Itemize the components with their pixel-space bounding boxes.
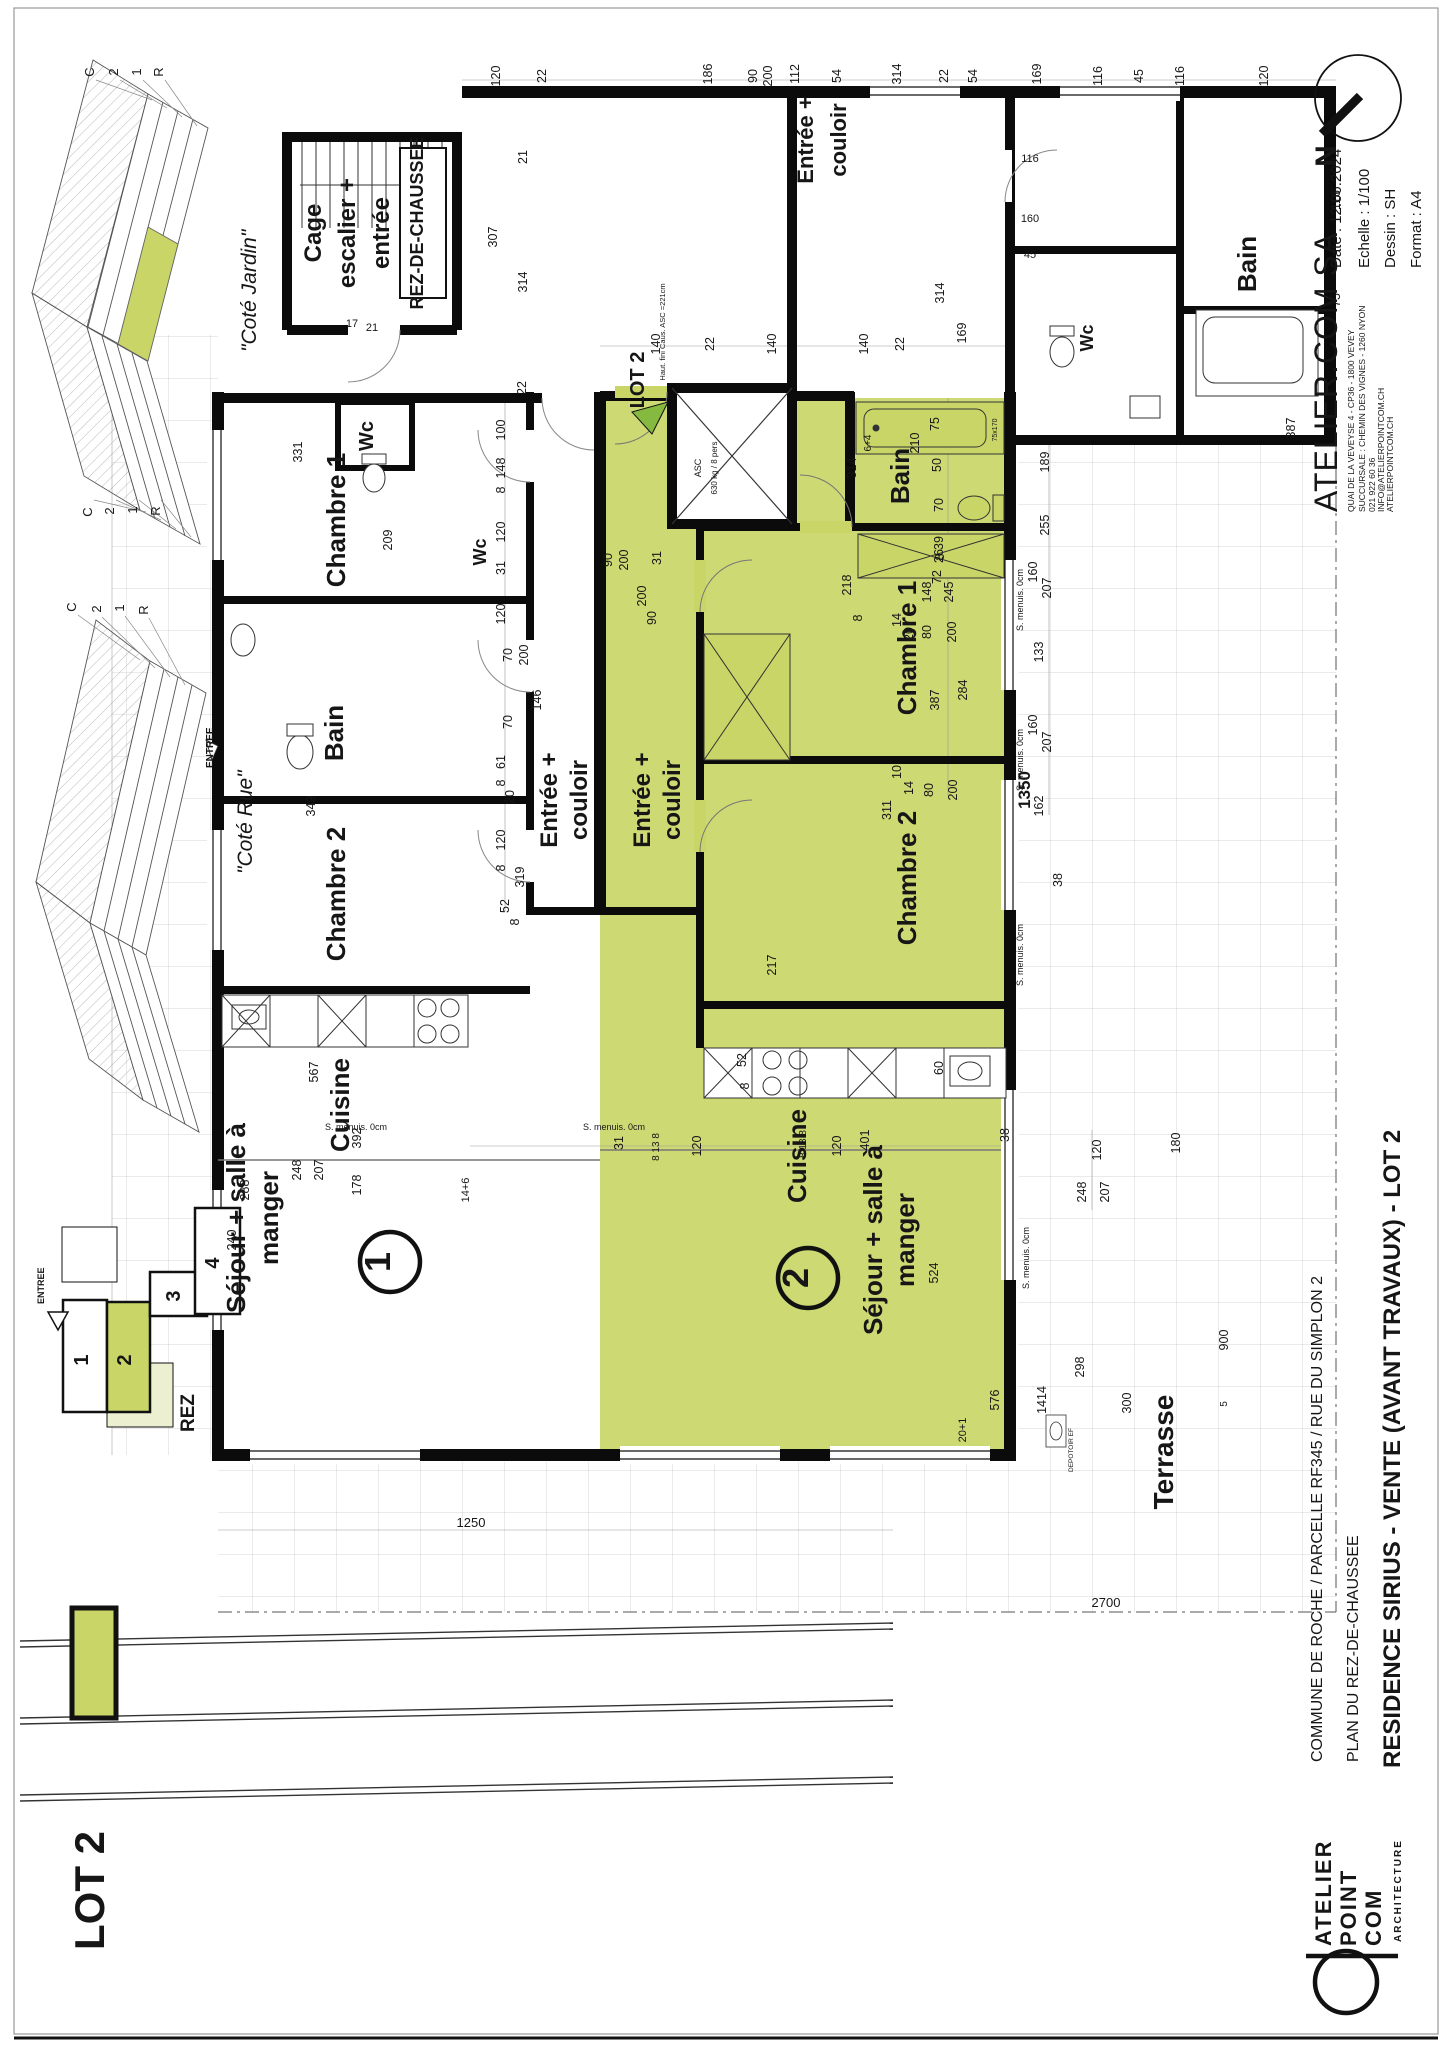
title-block-text: SUCCURSALE : CHEMIN DES VIGNES - 1260 NY… bbox=[1357, 306, 1367, 512]
dimension-label: 207 bbox=[1098, 1182, 1112, 1203]
dimension-label: 2700 bbox=[1092, 1595, 1121, 1610]
dimension-label: 38 bbox=[998, 1128, 1012, 1142]
room-label: Cage bbox=[300, 204, 327, 263]
dimension-label: 70 bbox=[501, 648, 515, 662]
dimension-label: 20 bbox=[902, 627, 916, 641]
dimension-label: 70 bbox=[932, 498, 946, 512]
dimension-label: 200 bbox=[617, 550, 631, 571]
dimension-label: 75 bbox=[1329, 293, 1343, 307]
dimension-label: 8 bbox=[933, 553, 947, 560]
axonometric-label: C bbox=[82, 67, 97, 76]
annotation-label: ASC bbox=[693, 458, 703, 477]
dimension-label: 120 bbox=[494, 604, 508, 625]
room-label: Chambre 2 bbox=[321, 827, 351, 961]
dimension-label: 245 bbox=[942, 582, 956, 603]
dimension-label: 75 bbox=[928, 417, 942, 431]
annotation-label: S. menuis. 0cm bbox=[1015, 924, 1025, 986]
logo-text: ARCHITECTURE bbox=[1393, 1839, 1404, 1942]
dimension-label: 22 bbox=[535, 69, 549, 83]
dimension-label: 284 bbox=[956, 680, 970, 701]
dimension-label: 90 bbox=[601, 553, 615, 567]
sink-bain1 bbox=[231, 624, 255, 656]
dimension-label: 20 bbox=[503, 790, 517, 804]
dimension-label: 8 13 8 bbox=[651, 1133, 662, 1161]
dimension-label: 8 bbox=[494, 864, 508, 871]
dimension-label: 100 bbox=[494, 420, 508, 441]
dimension-label: 14 bbox=[902, 781, 916, 795]
dimension-label: 314 bbox=[516, 272, 530, 293]
dimension-label: 140 bbox=[857, 334, 871, 355]
dimension-label: 52 bbox=[735, 1053, 749, 1067]
dimension-label: 160 bbox=[1021, 213, 1039, 225]
dimension-label: 80 bbox=[920, 625, 934, 639]
dimension-label: 217 bbox=[765, 955, 779, 976]
dimension-label: 54 bbox=[830, 69, 844, 83]
dimension-label: 20+1 bbox=[957, 1418, 969, 1443]
dimension-label: 387 bbox=[1284, 418, 1298, 439]
room-label: Chambre 2 bbox=[892, 811, 922, 945]
room-label: Terrasse bbox=[1148, 1395, 1179, 1510]
dimension-label: 80 bbox=[922, 783, 936, 797]
annotation-label: 630 kg / 8 pers bbox=[710, 442, 719, 495]
dimension-label: 169 bbox=[1030, 64, 1044, 85]
dimension-label: 38 bbox=[1051, 873, 1065, 887]
room-label: couloir bbox=[566, 760, 593, 840]
annotation-label: DEPOTOIR EF bbox=[1068, 1428, 1075, 1472]
sink-lot4 bbox=[1130, 396, 1160, 418]
dimension-label: 50 bbox=[930, 458, 944, 472]
dimension-label: 45 bbox=[1024, 249, 1036, 261]
dimension-label: 8 13 8 bbox=[798, 1130, 809, 1158]
title-block-text: Dessin : SH bbox=[1382, 189, 1399, 268]
dimension-label: 200 bbox=[946, 780, 960, 801]
dimension-label: 1350 bbox=[1015, 771, 1034, 809]
elevator bbox=[672, 388, 792, 524]
lot2-legend-swatch bbox=[72, 1608, 116, 1718]
key-plan-label: 1 bbox=[71, 1354, 93, 1365]
dimension-label: 331 bbox=[291, 442, 305, 463]
room-label: 1 bbox=[357, 1252, 398, 1272]
title-block-text: ATELIER.COM SA bbox=[1308, 232, 1344, 512]
dimension-label: 140 bbox=[765, 334, 779, 355]
logo-text: COM bbox=[1361, 1889, 1386, 1946]
dimension-label: 160 bbox=[1026, 562, 1040, 583]
dimension-label: 200 bbox=[517, 645, 531, 666]
bathtub-lot4 bbox=[1196, 310, 1318, 396]
dimension-label: 186 bbox=[701, 64, 715, 85]
annotation-label: S. menuis. 0cm bbox=[1021, 1227, 1031, 1289]
dimension-label: 576 bbox=[988, 1390, 1002, 1411]
dimension-label: 300 bbox=[1120, 1393, 1134, 1414]
dimension-label: 6+4 bbox=[863, 434, 874, 451]
axonometric-label: 1 bbox=[125, 506, 140, 513]
kitchen-counter-apt1 bbox=[222, 995, 468, 1047]
room-label: Wc bbox=[470, 539, 490, 566]
room-label: Bain bbox=[1232, 236, 1262, 292]
annotation-label: 75x170 bbox=[992, 418, 999, 441]
dimension-label: 207 bbox=[312, 1160, 326, 1181]
wardrobe-lot2-a bbox=[704, 634, 790, 760]
title-block-text: COMMUNE DE ROCHE / PARCELLE RF345 / RUE … bbox=[1309, 1276, 1326, 1762]
dimension-label: 314 bbox=[890, 64, 904, 85]
dimension-label: 54 bbox=[966, 69, 980, 83]
axonometric-label: 2 bbox=[106, 68, 121, 75]
dimension-label: 31 bbox=[650, 551, 664, 565]
dimension-label: 120 bbox=[494, 522, 508, 543]
dimension-label: 311 bbox=[880, 800, 894, 820]
toilet-bain2 bbox=[958, 495, 1004, 521]
dimension-label: 240 bbox=[225, 1230, 239, 1251]
title-block-text: QUAI DE LA VEVEYSE 4 - CP36 - 1800 VEVEY bbox=[1346, 329, 1356, 512]
room-label: couloir bbox=[826, 103, 851, 177]
dimension-label: 116 bbox=[1091, 66, 1105, 86]
dimension-label: 200 bbox=[635, 586, 649, 607]
dimension-label: 200 bbox=[945, 622, 959, 643]
atelier-point-com-logo-icon bbox=[1306, 1951, 1398, 2013]
dimension-label: 31 bbox=[494, 561, 508, 575]
dimension-label: 200 bbox=[761, 66, 775, 87]
dimension-label: 52 bbox=[498, 899, 512, 913]
dimension-label: 255 bbox=[1038, 515, 1052, 536]
dimension-label: 288 bbox=[238, 1180, 252, 1201]
title-block-text: Format : A4 bbox=[1408, 190, 1425, 268]
toilet-wc-apt1 bbox=[362, 454, 386, 492]
dimension-label: 1414 bbox=[1035, 1386, 1049, 1414]
axonometric-label: "Coté Jardin" bbox=[238, 228, 261, 352]
dimension-label: 180 bbox=[1169, 1133, 1183, 1154]
room-label: Entrée + bbox=[629, 752, 656, 847]
title-block-text: ATELIERPOINTCOM.CH bbox=[1385, 417, 1395, 512]
axonometric-label: R bbox=[151, 67, 166, 76]
street-lines bbox=[20, 1623, 893, 1801]
room-label: Chambre 1 bbox=[321, 453, 351, 587]
dimension-label: 8 bbox=[738, 1082, 752, 1089]
room-label: Séjour + salle à bbox=[858, 1144, 888, 1335]
dimension-label: 248 bbox=[290, 1160, 304, 1181]
toilet-bain1 bbox=[287, 724, 313, 769]
dimension-label: 116 bbox=[1329, 190, 1343, 210]
dimension-label: 8 bbox=[508, 918, 522, 925]
dimension-label: 189 bbox=[1038, 452, 1052, 473]
dimension-label: 8 bbox=[494, 486, 508, 493]
dimension-label: 22 bbox=[893, 337, 907, 351]
logo-text: POINT bbox=[1336, 1869, 1361, 1946]
annotation-label: S. menuis. 0cm bbox=[1015, 569, 1025, 631]
dimension-label: 140 bbox=[649, 334, 663, 355]
title-block-text: N bbox=[1310, 145, 1343, 167]
dimension-label: 14 bbox=[890, 613, 904, 627]
dimension-label: 5 bbox=[1219, 1401, 1230, 1407]
dimension-label: 218 bbox=[840, 575, 854, 596]
axonometric-label: 2 bbox=[89, 605, 104, 612]
dimension-label: 178 bbox=[350, 1175, 364, 1196]
dimension-label: 22 bbox=[703, 337, 717, 351]
room-label: Wc bbox=[1077, 325, 1097, 352]
key-plan-label: 2 bbox=[114, 1354, 136, 1365]
plan-sheet: Date : 12.06.2024Echelle : 1/100Dessin :… bbox=[0, 0, 1448, 2047]
dimension-label: 14+6 bbox=[460, 1178, 472, 1203]
logo-text: ATELIER bbox=[1311, 1840, 1336, 1946]
annotation-label: Haut. fini Caus. ASC =221cm bbox=[658, 283, 667, 380]
room-label: entrée bbox=[368, 197, 395, 269]
axonometric-label: C bbox=[80, 507, 95, 516]
dimension-label: 39 bbox=[932, 536, 946, 550]
dimension-label: 209 bbox=[381, 530, 395, 551]
dimension-label: 120 bbox=[489, 66, 503, 87]
dimension-label: 22 bbox=[515, 381, 529, 395]
dimension-label: 160 bbox=[1026, 715, 1040, 736]
axonometric-label: 1 bbox=[129, 68, 144, 75]
dimension-label: 116 bbox=[1173, 66, 1187, 86]
dimension-label: 207 bbox=[1040, 578, 1054, 599]
axonometric-label: ENTREE bbox=[205, 727, 216, 768]
dimension-label: 45 bbox=[1132, 69, 1146, 83]
dimension-label: 21 bbox=[366, 322, 378, 334]
dimension-label: 207 bbox=[1040, 732, 1054, 753]
dimension-label: 90 bbox=[746, 69, 760, 83]
room-label: manger bbox=[890, 1193, 920, 1287]
room-label: manger bbox=[254, 1171, 284, 1265]
axonometric-label: R bbox=[148, 506, 163, 515]
dimension-label: 22 bbox=[937, 69, 951, 83]
dimension-label: 120 bbox=[1090, 1140, 1104, 1161]
depotoir-box bbox=[1046, 1415, 1066, 1447]
room-label: REZ-DE-CHAUSSEE bbox=[407, 136, 427, 309]
room-label: LOT 2 bbox=[627, 352, 649, 409]
dimension-label: 524 bbox=[927, 1263, 941, 1284]
dimension-label: 31 bbox=[612, 1136, 626, 1150]
room-label: couloir bbox=[659, 760, 686, 840]
key-plan-label: ENTREE bbox=[36, 1267, 46, 1304]
dimension-label: 392 bbox=[350, 1128, 364, 1149]
dimension-label: 90 bbox=[645, 611, 659, 625]
annotation-label: S. menuis. 0cm bbox=[583, 1122, 645, 1132]
room-label: Wc bbox=[356, 421, 378, 451]
dimension-label: 169 bbox=[955, 323, 969, 344]
dimension-label: 60 bbox=[932, 1061, 946, 1075]
dimension-label: 148 bbox=[494, 458, 508, 479]
room-label: Entrée + bbox=[793, 96, 818, 183]
dimension-label: 116 bbox=[1021, 153, 1039, 165]
room-label: escalier + bbox=[334, 178, 361, 288]
room-label: Entrée + bbox=[536, 752, 563, 847]
dimension-label: 307 bbox=[486, 227, 500, 248]
dimension-label: 21 bbox=[516, 150, 530, 164]
dimension-label: 120 bbox=[1257, 66, 1271, 87]
title-block-text: RESIDENCE SIRIUS - VENTE (AVANT TRAVAUX)… bbox=[1379, 1130, 1406, 1768]
dimension-label: 1250 bbox=[457, 1515, 486, 1530]
axonometric-label: 1 bbox=[112, 604, 127, 611]
axonometric-label: C bbox=[64, 602, 79, 611]
dimension-label: 8 bbox=[494, 779, 508, 786]
dimension-label: 120 bbox=[830, 1136, 844, 1157]
dimension-label: 349 bbox=[304, 796, 318, 817]
dimension-label: 120 bbox=[690, 1136, 704, 1157]
dimension-label: 900 bbox=[1217, 1330, 1231, 1351]
axonometric-label: 2 bbox=[102, 507, 117, 514]
title-block-text: Echelle : 1/100 bbox=[1356, 169, 1373, 268]
dimension-label: 70 bbox=[501, 715, 515, 729]
key-plan-label: 3 bbox=[163, 1290, 185, 1301]
dimension-label: 146 bbox=[530, 690, 544, 711]
dimension-label: 401 bbox=[858, 1130, 872, 1151]
room-label: Bain bbox=[885, 448, 915, 504]
dimension-label: 210 bbox=[908, 433, 922, 454]
kitchen-counter-lot2 bbox=[704, 1048, 1006, 1098]
floor-plan-drawing: Date : 12.06.2024Echelle : 1/100Dessin :… bbox=[0, 0, 1448, 2047]
room-label: 2 bbox=[775, 1268, 816, 1288]
dimension-label: 10 bbox=[890, 765, 904, 779]
dimension-label: 314 bbox=[933, 283, 947, 304]
dimension-label: 162 bbox=[1032, 796, 1046, 817]
dimension-label: 314 bbox=[845, 458, 859, 479]
dimension-label: 17 bbox=[346, 318, 358, 330]
key-plan-label: REZ bbox=[178, 1394, 199, 1432]
title-block-text: PLAN DU REZ-DE-CHAUSSEE bbox=[1345, 1535, 1362, 1762]
dimension-label: 8 bbox=[851, 614, 865, 621]
room-label: Séjour + salle à bbox=[221, 1122, 251, 1313]
dimension-label: 298 bbox=[1073, 1357, 1087, 1378]
dimension-label: 387 bbox=[928, 690, 942, 711]
dimension-label: 319 bbox=[513, 867, 527, 888]
room-label: Bain bbox=[319, 705, 349, 761]
axonometric-label: R bbox=[136, 605, 151, 614]
dimension-label: 567 bbox=[307, 1062, 321, 1083]
dimension-label: 120 bbox=[494, 830, 508, 851]
axonometric-label: "Coté Rue" bbox=[234, 769, 257, 874]
legend-text: LOT 2 bbox=[66, 1831, 113, 1950]
dimension-label: 112 bbox=[788, 64, 802, 84]
dimension-label: 133 bbox=[1032, 642, 1046, 663]
dimension-label: 61 bbox=[494, 755, 508, 769]
dimension-label: 248 bbox=[1075, 1182, 1089, 1203]
toilet-wc-lot4 bbox=[1050, 326, 1074, 367]
room-label: Chambre 1 bbox=[892, 581, 922, 715]
